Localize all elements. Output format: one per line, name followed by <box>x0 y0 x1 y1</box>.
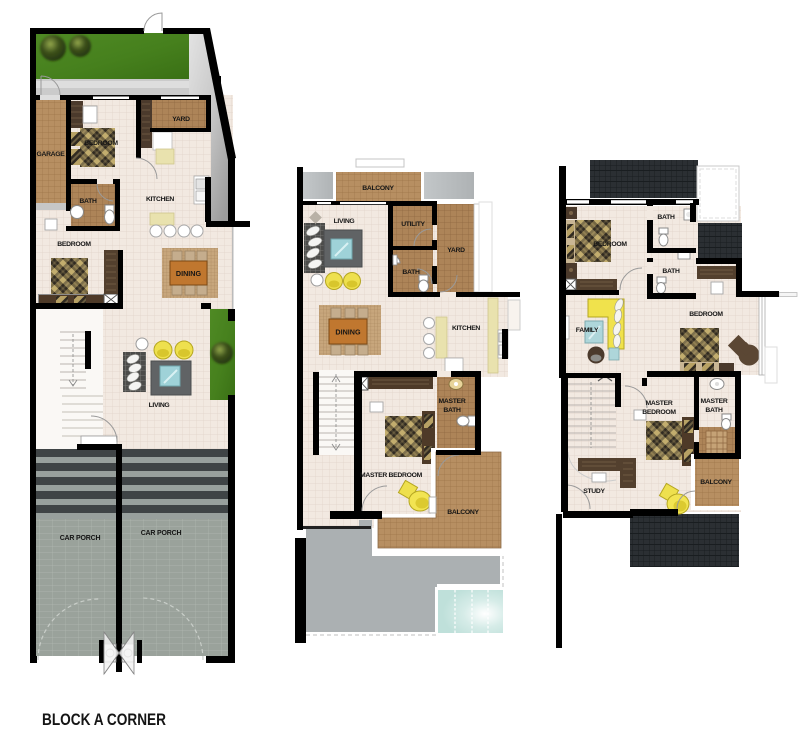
svg-text:MASTER: MASTER <box>439 398 466 405</box>
svg-text:YARD: YARD <box>447 247 465 254</box>
svg-text:MASTER: MASTER <box>701 398 728 405</box>
svg-text:MASTER: MASTER <box>646 400 673 407</box>
svg-text:BATH: BATH <box>443 407 461 414</box>
svg-text:BATH: BATH <box>705 407 723 414</box>
svg-text:BATH: BATH <box>402 269 420 276</box>
svg-text:BEDROOM: BEDROOM <box>689 311 723 318</box>
svg-text:LIVING: LIVING <box>334 218 355 225</box>
svg-text:BEDROOM: BEDROOM <box>84 140 118 147</box>
svg-text:CAR PORCH: CAR PORCH <box>141 530 182 537</box>
svg-text:GARAGE: GARAGE <box>36 151 65 158</box>
svg-text:KITCHEN: KITCHEN <box>452 325 480 332</box>
svg-text:BALCONY: BALCONY <box>700 479 732 486</box>
svg-text:BATH: BATH <box>662 268 680 275</box>
svg-text:BATH: BATH <box>79 198 97 205</box>
svg-text:MASTER BEDROOM: MASTER BEDROOM <box>360 472 423 479</box>
svg-text:DINING: DINING <box>335 328 361 337</box>
svg-text:BALCONY: BALCONY <box>447 509 479 516</box>
svg-text:UTILITY: UTILITY <box>401 221 425 228</box>
svg-text:LIVING: LIVING <box>149 402 170 409</box>
svg-text:BALCONY: BALCONY <box>362 185 394 192</box>
svg-text:BEDROOM: BEDROOM <box>57 241 91 248</box>
svg-text:BLOCK A CORNER: BLOCK A CORNER <box>42 710 166 729</box>
svg-text:STUDY: STUDY <box>583 488 605 495</box>
svg-text:FAMILY: FAMILY <box>576 327 599 334</box>
svg-text:BEDROOM: BEDROOM <box>593 241 627 248</box>
svg-text:CAR PORCH: CAR PORCH <box>60 535 101 542</box>
svg-text:YARD: YARD <box>172 116 190 123</box>
svg-text:KITCHEN: KITCHEN <box>146 196 174 203</box>
svg-text:BATH: BATH <box>657 214 675 221</box>
svg-text:DINING: DINING <box>176 269 202 278</box>
svg-text:BEDROOM: BEDROOM <box>642 409 676 416</box>
